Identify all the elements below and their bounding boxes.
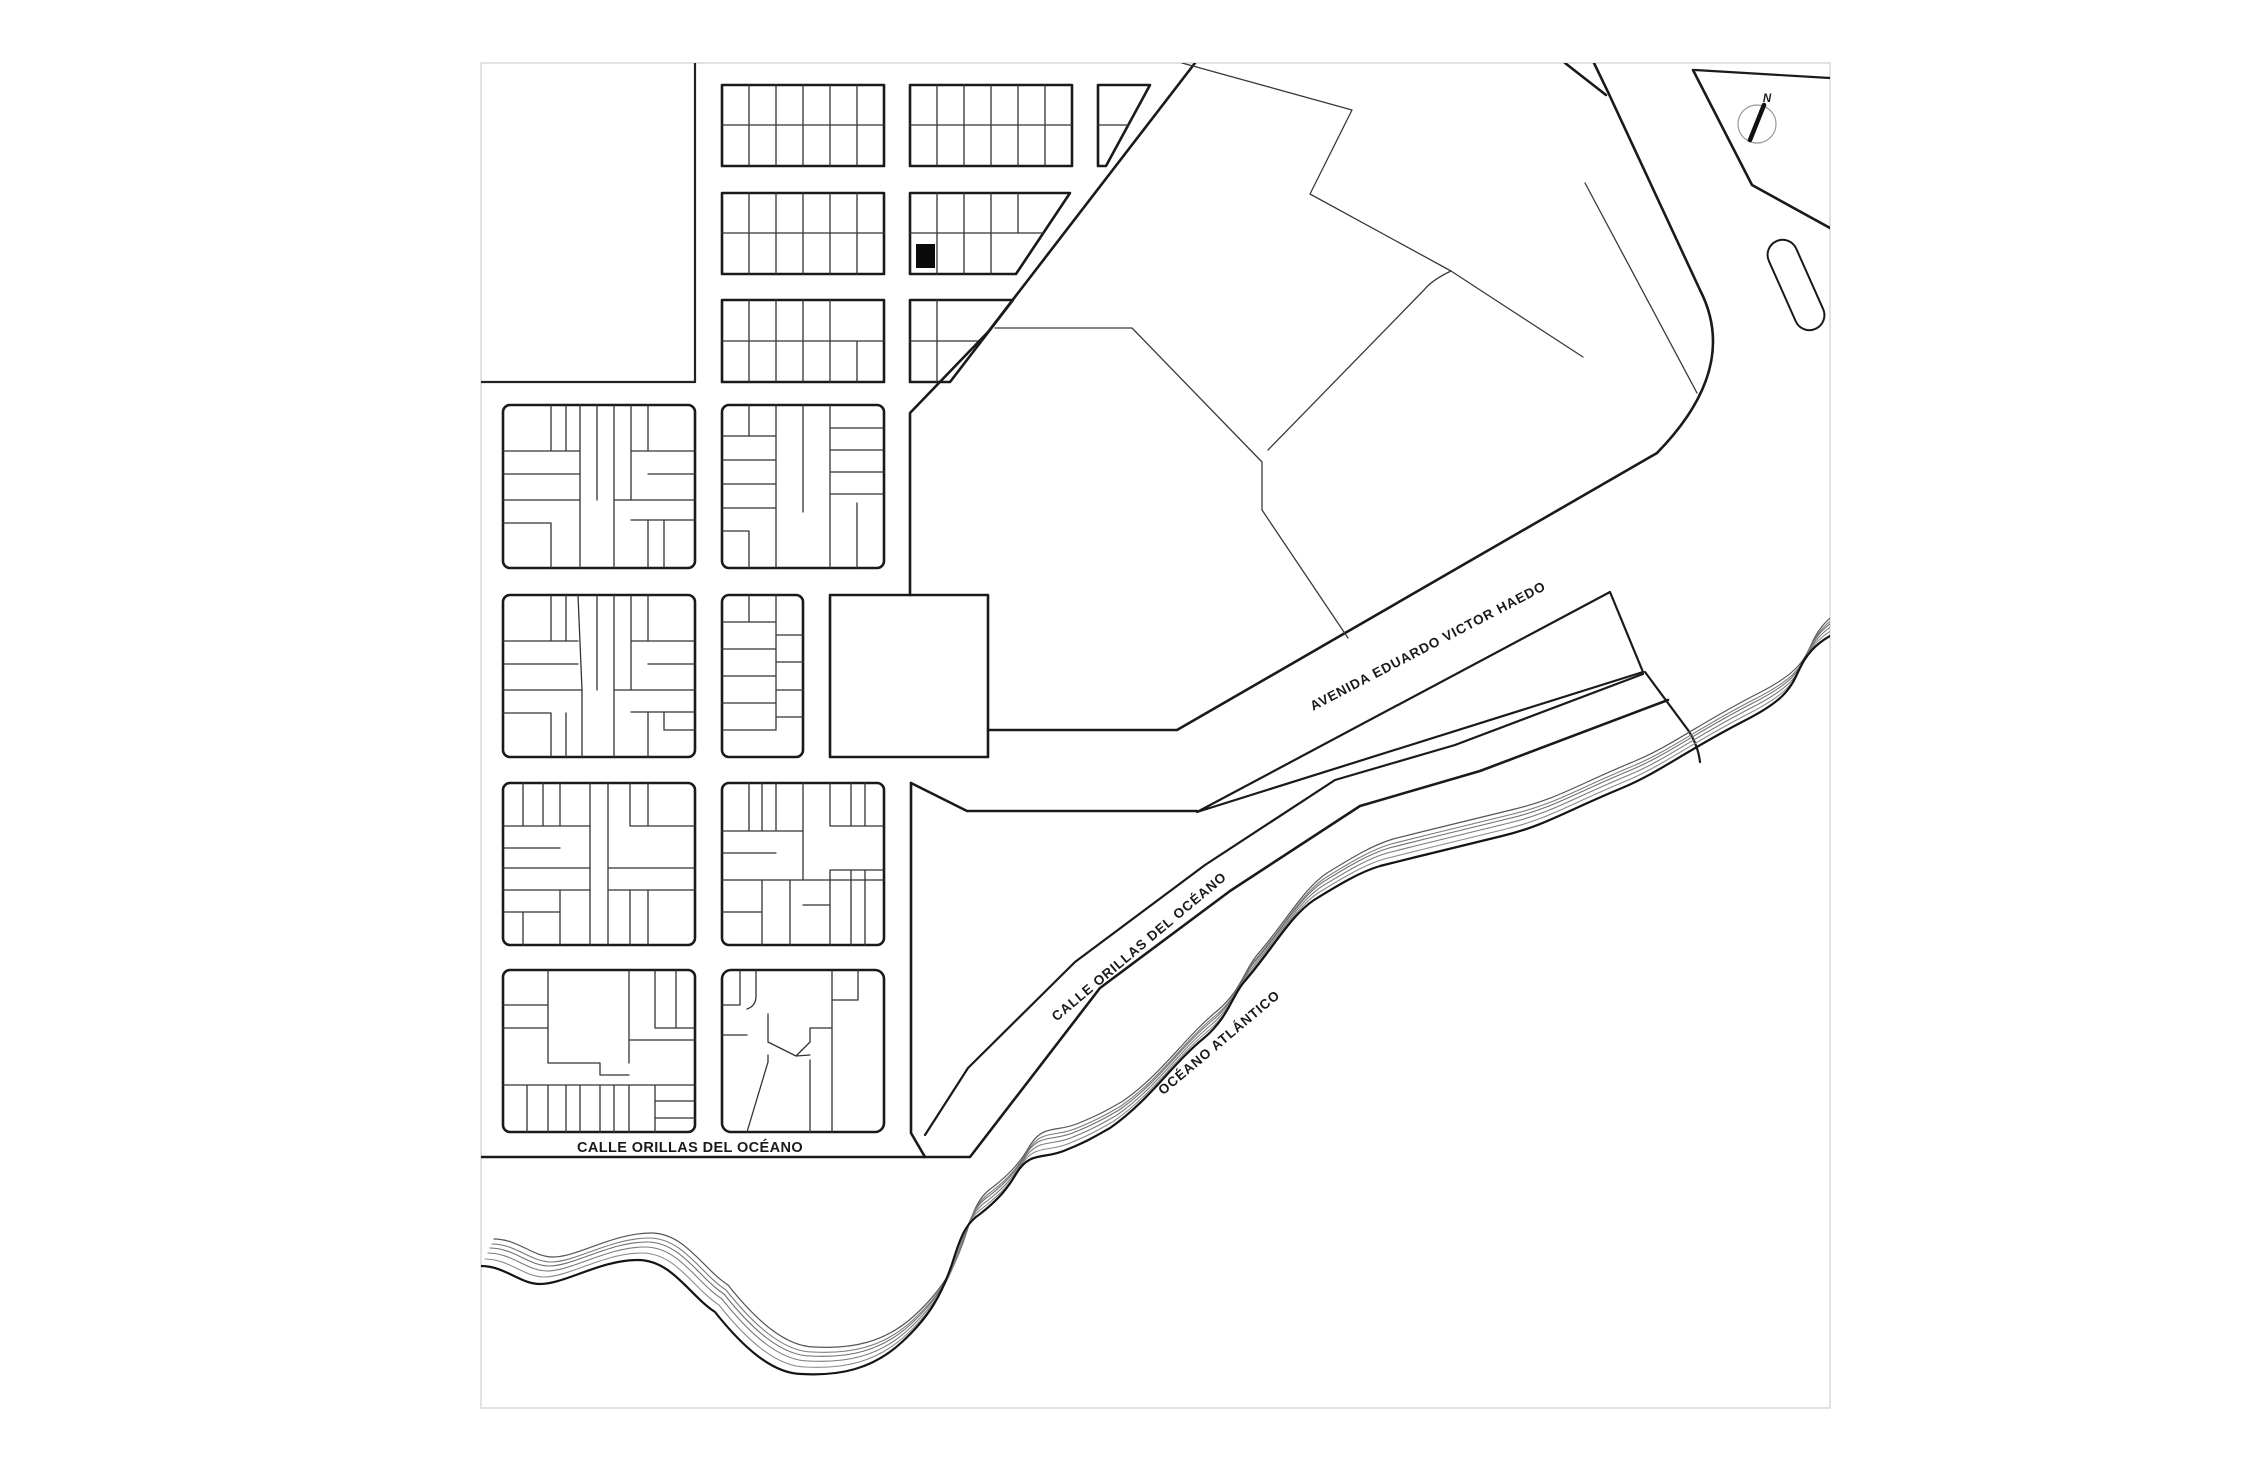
highlighted-parcel xyxy=(916,244,935,268)
label-oceano-atlantico: OCÉANO ATLÁNTICO xyxy=(1155,987,1283,1097)
parcel-central-square xyxy=(830,595,988,757)
label-avenida-haedo: AVENIDA EDUARDO VICTOR HAEDO xyxy=(1308,579,1549,714)
label-calle-orillas-diagonal: CALLE ORILLAS DEL OCÉANO xyxy=(1049,869,1230,1024)
parcel-top-left xyxy=(481,63,695,382)
road-diagonal-north xyxy=(910,63,1195,595)
block-complex-grid xyxy=(503,405,884,1132)
label-calle-orillas-bottom: CALLE ORILLAS DEL OCÉANO xyxy=(577,1139,803,1156)
compass-needle-icon xyxy=(1750,105,1764,140)
parcels-north-east xyxy=(995,63,1829,638)
road-calle-orillas xyxy=(481,672,1700,1157)
compass-north-label: N xyxy=(1763,93,1772,105)
north-compass: N xyxy=(1738,93,1776,143)
shoreline xyxy=(481,609,1843,1374)
block-grid-top xyxy=(722,85,1150,382)
map-frame xyxy=(481,63,1830,1408)
site-plan-map: AVENIDA EDUARDO VICTOR HAEDO CALLE ORILL… xyxy=(0,0,2259,1482)
site-plan-sheet: AVENIDA EDUARDO VICTOR HAEDO CALLE ORILL… xyxy=(0,0,2259,1482)
